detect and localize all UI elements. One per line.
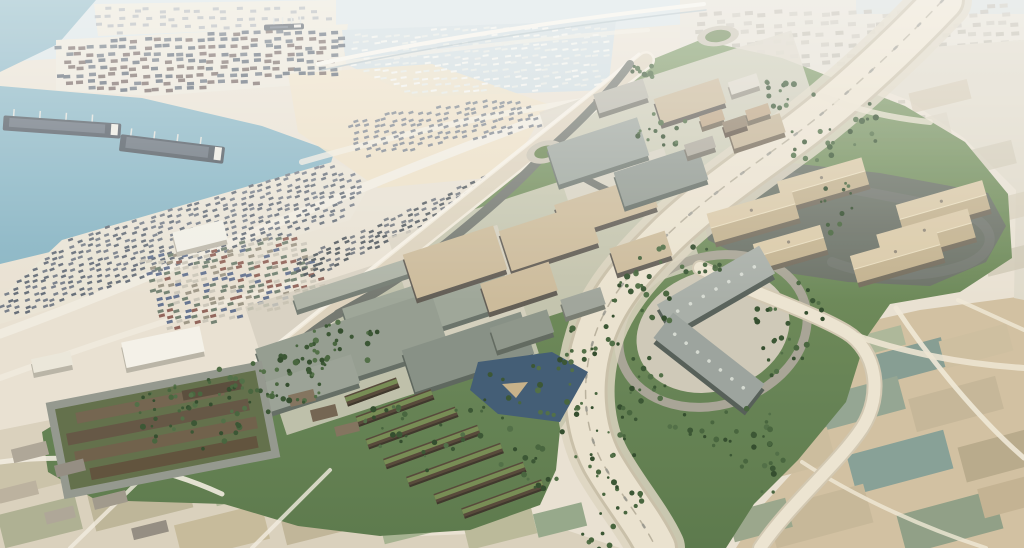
aerial-render — [0, 0, 1024, 548]
aerial-photo — [0, 0, 1024, 548]
warm-wash — [0, 0, 1024, 548]
scene-layers — [0, 0, 1024, 548]
